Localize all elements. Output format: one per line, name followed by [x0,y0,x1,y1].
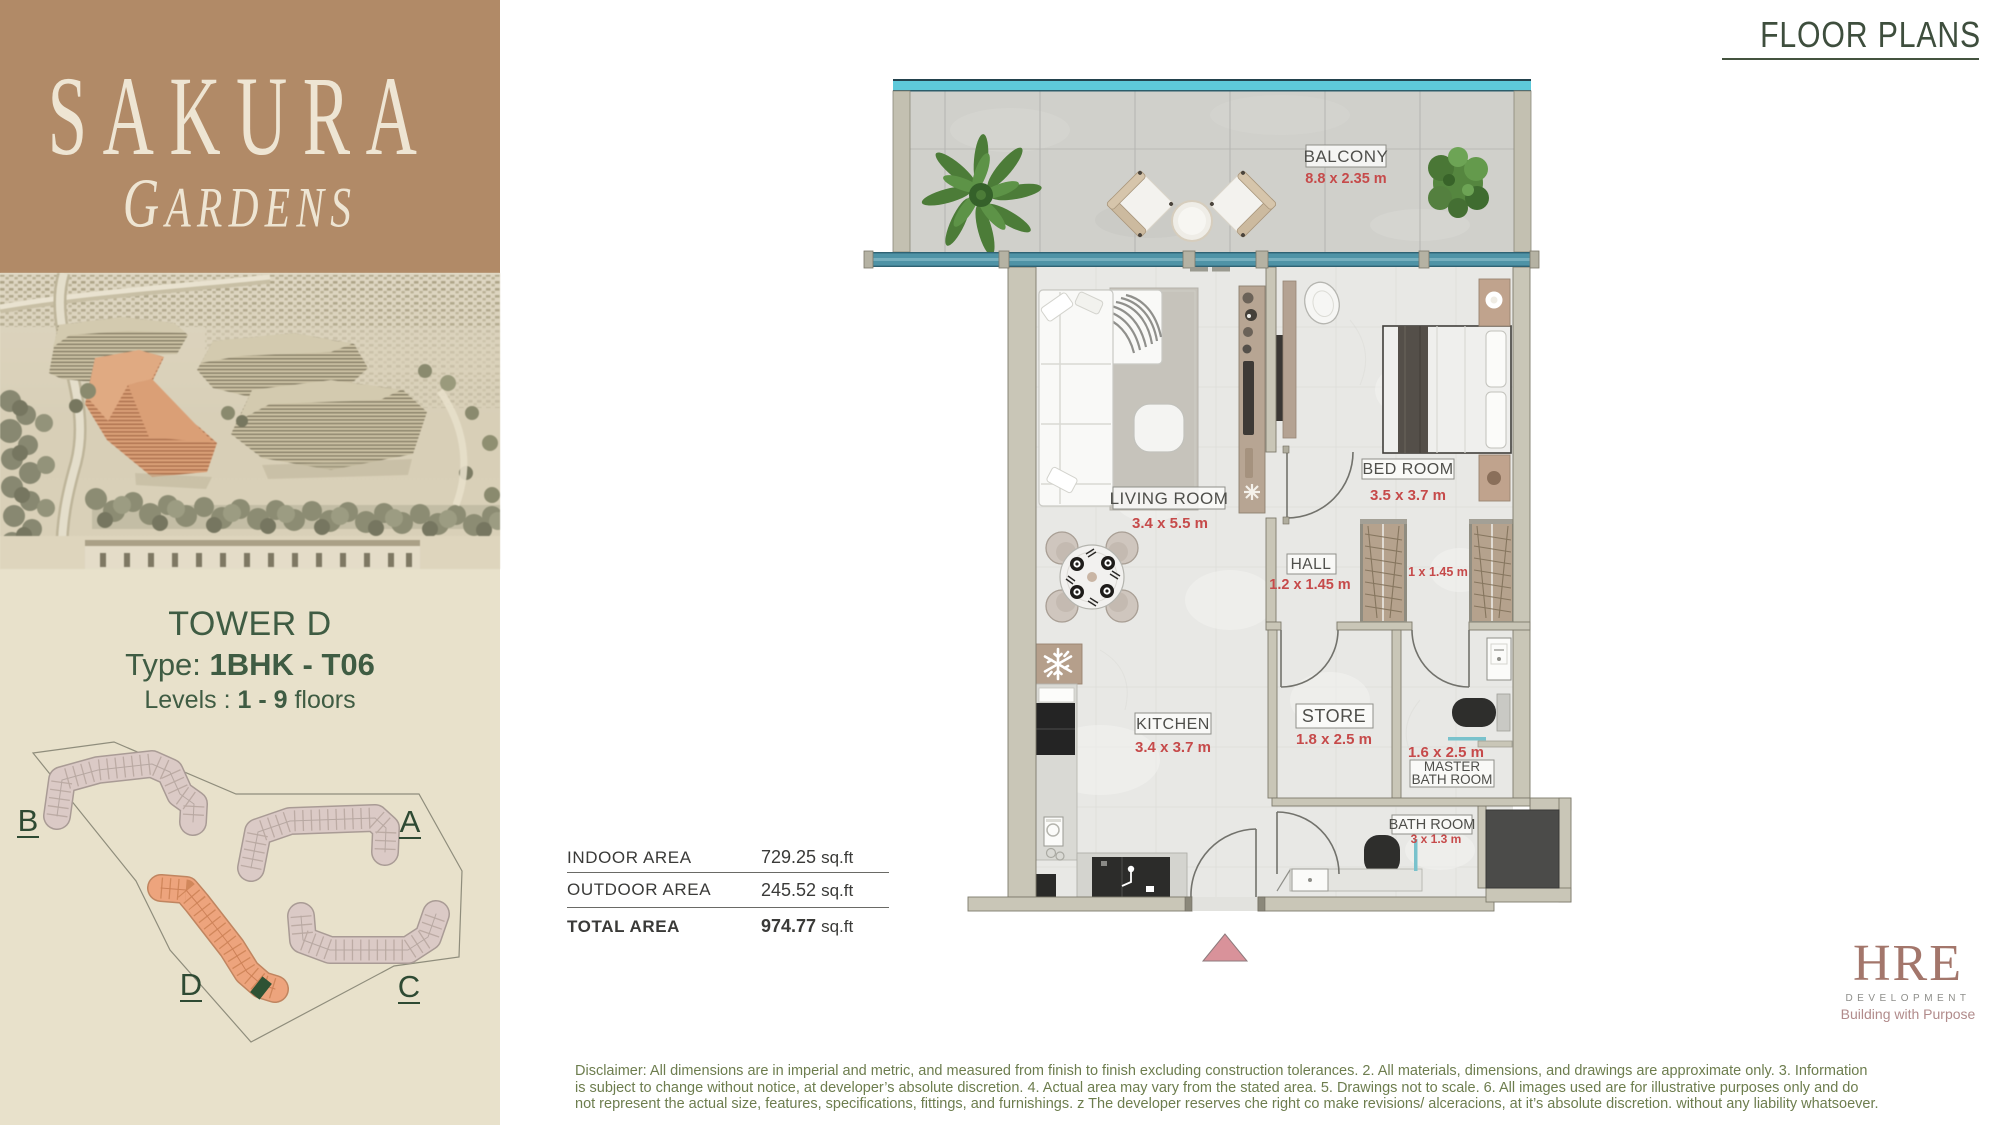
svg-text:B: B [18,803,39,838]
svg-text:1.2 x 1.45 m: 1.2 x 1.45 m [1269,577,1350,593]
svg-text:BATH ROOM: BATH ROOM [1389,817,1476,833]
svg-text:LIVING ROOM: LIVING ROOM [1110,489,1229,508]
svg-text:BATH ROOM: BATH ROOM [1412,772,1493,787]
svg-text:BALCONY: BALCONY [1304,147,1389,166]
svg-text:BED ROOM: BED ROOM [1362,461,1453,478]
svg-text:8.8 x 2.35 m: 8.8 x 2.35 m [1305,171,1386,187]
svg-text:STORE: STORE [1302,706,1366,726]
svg-text:KITCHEN: KITCHEN [1136,716,1210,733]
svg-text:3.5 x 3.7 m: 3.5 x 3.7 m [1370,487,1446,504]
svg-text:3.4 x 5.5 m: 3.4 x 5.5 m [1132,515,1208,532]
svg-text:1 x 1.45 m: 1 x 1.45 m [1408,565,1468,579]
svg-text:D: D [180,967,202,1002]
svg-text:C: C [398,969,420,1004]
svg-text:3 x 1.3 m: 3 x 1.3 m [1411,832,1462,846]
svg-text:A: A [400,804,421,839]
svg-text:HALL: HALL [1291,556,1332,573]
svg-text:1.8 x 2.5 m: 1.8 x 2.5 m [1296,731,1372,748]
svg-text:3.4 x 3.7 m: 3.4 x 3.7 m [1135,739,1211,756]
